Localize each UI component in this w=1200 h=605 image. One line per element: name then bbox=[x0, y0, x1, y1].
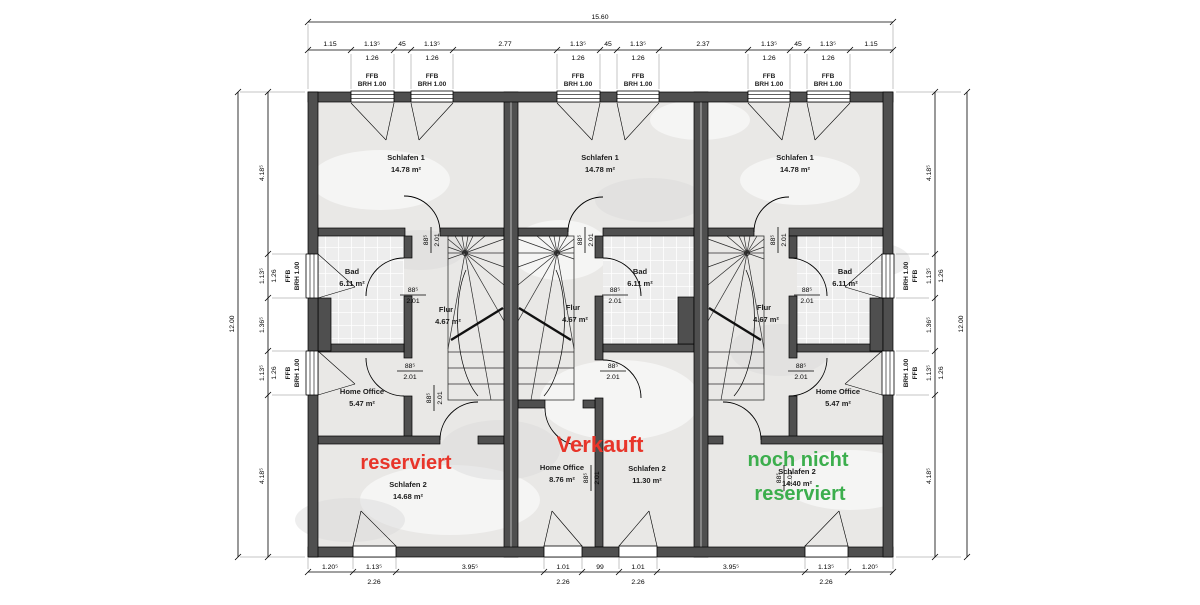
window-label: BRH 1.00FFB bbox=[903, 358, 919, 387]
svg-text:4.18⁵: 4.18⁵ bbox=[259, 165, 266, 181]
svg-text:1.01: 1.01 bbox=[631, 564, 644, 571]
room-label-schlafen1-middle: Schlafen 1 bbox=[581, 153, 619, 162]
svg-text:2.26: 2.26 bbox=[556, 579, 569, 586]
svg-text:2.01: 2.01 bbox=[794, 374, 807, 381]
room-label-schlafen1-right: Schlafen 1 bbox=[776, 153, 814, 162]
svg-text:1.15: 1.15 bbox=[864, 41, 877, 48]
svg-text:FFB: FFB bbox=[763, 73, 776, 80]
status-unit-right-line2: reserviert bbox=[754, 483, 846, 505]
svg-text:88⁵: 88⁵ bbox=[608, 363, 619, 370]
svg-text:12.00: 12.00 bbox=[958, 315, 965, 332]
window-label: FFBBRH 1.00 bbox=[358, 73, 387, 88]
svg-text:88⁵: 88⁵ bbox=[408, 287, 419, 294]
room-label-flur-middle: Flur bbox=[566, 303, 580, 312]
window-label: FFBBRH 1.00 bbox=[285, 261, 301, 290]
dimension-chain-bottom: 1.20⁵ 1.13⁵ 3.95⁵ 1.01 99 1.01 3.95⁵ 1.1… bbox=[305, 558, 896, 586]
ticks-top-chain bbox=[305, 47, 896, 53]
svg-text:1.26: 1.26 bbox=[571, 55, 584, 62]
svg-text:FFB: FFB bbox=[285, 269, 292, 282]
svg-text:BRH 1.00: BRH 1.00 bbox=[358, 81, 387, 88]
svg-text:FFB: FFB bbox=[632, 73, 645, 80]
svg-text:1.01: 1.01 bbox=[556, 564, 569, 571]
svg-text:2.01: 2.01 bbox=[406, 298, 419, 305]
window-label: FFBBRH 1.00 bbox=[814, 73, 843, 88]
svg-text:88⁵: 88⁵ bbox=[770, 235, 777, 246]
extension-lines-top bbox=[308, 24, 893, 89]
svg-text:1.13⁵: 1.13⁵ bbox=[570, 41, 586, 48]
room-label-flur-left: Flur bbox=[439, 305, 453, 314]
room-label-homeoffice-left: Home Office bbox=[340, 387, 384, 396]
svg-text:1.26: 1.26 bbox=[271, 366, 278, 379]
room-area-homeoffice-right: 5.47 m² bbox=[825, 399, 851, 408]
svg-text:1.26: 1.26 bbox=[821, 55, 834, 62]
svg-text:1.26: 1.26 bbox=[425, 55, 438, 62]
svg-text:4.18⁵: 4.18⁵ bbox=[926, 468, 933, 484]
svg-text:88⁵: 88⁵ bbox=[426, 393, 433, 404]
room-label-flur-right: Flur bbox=[757, 303, 771, 312]
dim-overall-width: 15.60 bbox=[591, 14, 608, 21]
svg-text:1.13⁵: 1.13⁵ bbox=[761, 41, 777, 48]
svg-text:1.13⁵: 1.13⁵ bbox=[259, 268, 266, 284]
window-label: FFBBRH 1.00 bbox=[564, 73, 593, 88]
svg-text:BRH 1.00: BRH 1.00 bbox=[624, 81, 653, 88]
svg-text:45: 45 bbox=[794, 41, 802, 48]
svg-text:FFB: FFB bbox=[426, 73, 439, 80]
svg-text:3.95⁵: 3.95⁵ bbox=[462, 564, 478, 571]
room-area-homeoffice-middle: 8.76 m² bbox=[549, 475, 575, 484]
svg-text:2.37: 2.37 bbox=[696, 41, 709, 48]
svg-text:1.15: 1.15 bbox=[323, 41, 336, 48]
room-label-bad-left: Bad bbox=[345, 267, 360, 276]
svg-text:1.13⁵: 1.13⁵ bbox=[366, 564, 382, 571]
svg-text:12.00: 12.00 bbox=[229, 315, 236, 332]
svg-text:BRH 1.00: BRH 1.00 bbox=[418, 81, 447, 88]
room-area-bad-right: 6.11 m² bbox=[832, 279, 858, 288]
svg-text:2.01: 2.01 bbox=[588, 233, 595, 246]
svg-text:1.13⁵: 1.13⁵ bbox=[259, 365, 266, 381]
svg-text:1.26: 1.26 bbox=[938, 269, 945, 282]
svg-text:1.13⁵: 1.13⁵ bbox=[926, 365, 933, 381]
room-label-bad-right: Bad bbox=[838, 267, 853, 276]
svg-text:2.26: 2.26 bbox=[367, 579, 380, 586]
svg-text:99: 99 bbox=[596, 564, 604, 571]
dim-overall-height-left: 12.00 bbox=[229, 315, 236, 332]
room-area-schlafen1-left: 14.78 m² bbox=[391, 165, 422, 174]
window-label: FFBBRH 1.00 bbox=[624, 73, 653, 88]
svg-text:1.36⁵: 1.36⁵ bbox=[259, 317, 266, 333]
svg-text:2.01: 2.01 bbox=[437, 391, 444, 404]
svg-text:2.01: 2.01 bbox=[594, 471, 601, 484]
svg-text:1.26: 1.26 bbox=[271, 269, 278, 282]
svg-text:1.13⁵: 1.13⁵ bbox=[818, 564, 834, 571]
svg-text:88⁵: 88⁵ bbox=[610, 287, 621, 294]
svg-text:2.01: 2.01 bbox=[606, 374, 619, 381]
status-unit-left: reserviert bbox=[360, 452, 452, 474]
room-area-schlafen2-middle: 11.30 m² bbox=[632, 476, 662, 485]
room-label-bad-middle: Bad bbox=[633, 267, 648, 276]
svg-text:4.18⁵: 4.18⁵ bbox=[259, 468, 266, 484]
svg-text:FFB: FFB bbox=[366, 73, 379, 80]
svg-text:BRH 1.00: BRH 1.00 bbox=[294, 261, 301, 290]
svg-text:1.26: 1.26 bbox=[938, 366, 945, 379]
room-label-schlafen2-left: Schlafen 2 bbox=[389, 480, 427, 489]
svg-text:BRH 1.00: BRH 1.00 bbox=[564, 81, 593, 88]
svg-text:2.26: 2.26 bbox=[631, 579, 644, 586]
room-area-flur-middle: 4.67 m² bbox=[562, 315, 588, 324]
svg-text:BRH 1.00: BRH 1.00 bbox=[903, 358, 910, 387]
status-unit-right-line1: noch nicht bbox=[747, 449, 848, 471]
dimension-chain-left: 12.00 4.18⁵ 1.13⁵ 1.36⁵ 1.13⁵ 4.18⁵ 1.26… bbox=[229, 89, 305, 560]
svg-text:1.26: 1.26 bbox=[762, 55, 775, 62]
svg-text:2.26: 2.26 bbox=[819, 579, 832, 586]
floor-plan-drawing: 88⁵2.01 88⁵2.01 88⁵2.01 88⁵2.01 88⁵2.01 … bbox=[0, 0, 1200, 600]
svg-text:1.13⁵: 1.13⁵ bbox=[364, 41, 380, 48]
svg-text:1.13⁵: 1.13⁵ bbox=[630, 41, 646, 48]
room-area-flur-left: 4.67 m² bbox=[435, 317, 461, 326]
svg-text:88⁵: 88⁵ bbox=[423, 235, 430, 246]
svg-text:4.18⁵: 4.18⁵ bbox=[926, 165, 933, 181]
svg-text:FFB: FFB bbox=[572, 73, 585, 80]
svg-text:1.20⁵: 1.20⁵ bbox=[862, 564, 878, 571]
svg-text:FFB: FFB bbox=[912, 269, 919, 282]
svg-text:BRH 1.00: BRH 1.00 bbox=[814, 81, 843, 88]
svg-text:88⁵: 88⁵ bbox=[583, 473, 590, 484]
room-label-homeoffice-right: Home Office bbox=[816, 387, 860, 396]
svg-text:88⁵: 88⁵ bbox=[796, 363, 807, 370]
room-area-homeoffice-left: 5.47 m² bbox=[349, 399, 375, 408]
svg-text:2.01: 2.01 bbox=[800, 298, 813, 305]
room-area-bad-middle: 6.11 m² bbox=[627, 279, 653, 288]
svg-text:2.01: 2.01 bbox=[434, 233, 441, 246]
room-label-homeoffice-middle: Home Office bbox=[540, 463, 584, 472]
svg-text:FFB: FFB bbox=[822, 73, 835, 80]
svg-text:2.01: 2.01 bbox=[403, 374, 416, 381]
svg-text:1.26: 1.26 bbox=[365, 55, 378, 62]
room-area-flur-right: 4.67 m² bbox=[753, 315, 779, 324]
svg-text:BRH 1.00: BRH 1.00 bbox=[755, 81, 784, 88]
room-area-schlafen2-left: 14.68 m² bbox=[393, 492, 424, 501]
room-label-schlafen2-middle: Schlafen 2 bbox=[628, 464, 666, 473]
svg-text:45: 45 bbox=[604, 41, 612, 48]
svg-text:FFB: FFB bbox=[912, 366, 919, 379]
room-area-schlafen1-middle: 14.78 m² bbox=[585, 165, 616, 174]
svg-text:2.01: 2.01 bbox=[608, 298, 621, 305]
dim-overall-height-right: 12.00 bbox=[958, 315, 965, 332]
svg-text:88⁵: 88⁵ bbox=[802, 287, 813, 294]
svg-text:45: 45 bbox=[398, 41, 406, 48]
svg-text:3.95⁵: 3.95⁵ bbox=[723, 564, 739, 571]
floor-plan-page: 88⁵2.01 88⁵2.01 88⁵2.01 88⁵2.01 88⁵2.01 … bbox=[0, 0, 1200, 600]
svg-text:88⁵: 88⁵ bbox=[405, 363, 416, 370]
room-area-bad-left: 6.11 m² bbox=[339, 279, 365, 288]
window-label: BRH 1.00FFB bbox=[903, 261, 919, 290]
dimension-chain-top: 15.60 1.15 1.13⁵ 45 1.13⁵ 2.77 1.13⁵ 45 … bbox=[305, 14, 896, 89]
svg-text:FFB: FFB bbox=[285, 366, 292, 379]
status-unit-middle: Verkauft bbox=[557, 432, 644, 457]
window-label: FFBBRH 1.00 bbox=[755, 73, 784, 88]
svg-text:1.13⁵: 1.13⁵ bbox=[820, 41, 836, 48]
svg-text:1.26: 1.26 bbox=[631, 55, 644, 62]
svg-text:1.13⁵: 1.13⁵ bbox=[424, 41, 440, 48]
extension-lines-left bbox=[240, 92, 305, 557]
svg-text:1.20⁵: 1.20⁵ bbox=[322, 564, 338, 571]
room-area-schlafen1-right: 14.78 m² bbox=[780, 165, 811, 174]
svg-text:2.01: 2.01 bbox=[781, 233, 788, 246]
svg-text:BRH 1.00: BRH 1.00 bbox=[294, 358, 301, 387]
svg-text:2.77: 2.77 bbox=[498, 41, 511, 48]
room-label-schlafen1-left: Schlafen 1 bbox=[387, 153, 425, 162]
window-label: FFBBRH 1.00 bbox=[418, 73, 447, 88]
svg-text:BRH 1.00: BRH 1.00 bbox=[903, 261, 910, 290]
window-label: FFBBRH 1.00 bbox=[285, 358, 301, 387]
svg-text:1.13⁵: 1.13⁵ bbox=[926, 268, 933, 284]
svg-text:1.36⁵: 1.36⁵ bbox=[926, 317, 933, 333]
svg-text:88⁵: 88⁵ bbox=[577, 235, 584, 246]
